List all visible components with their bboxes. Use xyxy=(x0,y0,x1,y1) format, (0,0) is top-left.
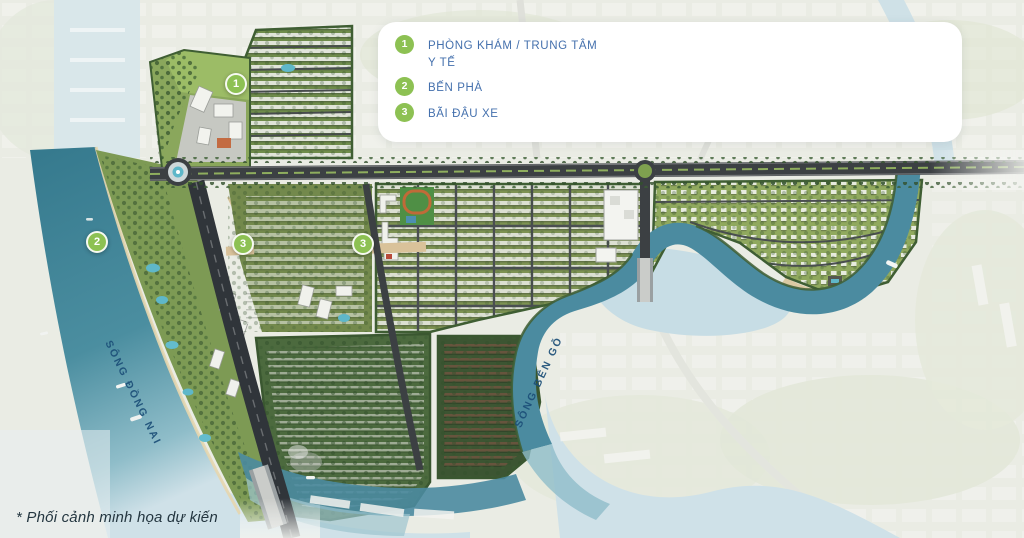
northeast-townhouse-district xyxy=(242,26,354,160)
map-marker-1[interactable]: 1 xyxy=(225,73,247,95)
legend-item-3: 3BÃI ĐẬU XE xyxy=(395,103,938,123)
legend-item-1: 1PHÒNG KHÁM / TRUNG TÂM Y TẾ xyxy=(395,35,938,71)
legend-number-badge: 1 xyxy=(395,35,414,54)
legend-label: BẾN PHÀ xyxy=(428,77,483,97)
legend-item-2: 2BẾN PHÀ xyxy=(395,77,938,97)
legend-number-badge: 3 xyxy=(395,103,414,122)
fountain-roundabout xyxy=(164,158,192,186)
legend-label: BÃI ĐẬU XE xyxy=(428,103,499,123)
east-roundabout xyxy=(634,160,656,182)
map-marker-3[interactable]: 3 xyxy=(232,233,254,255)
map-marker-2[interactable]: 2 xyxy=(86,231,108,253)
map-caption: * Phối cảnh minh họa dự kiến xyxy=(16,509,218,526)
legend-label: PHÒNG KHÁM / TRUNG TÂM Y TẾ xyxy=(428,35,606,71)
legend-card: 1PHÒNG KHÁM / TRUNG TÂM Y TẾ2BẾN PHÀ3BÃI… xyxy=(378,22,962,142)
map-marker-3[interactable]: 3 xyxy=(352,233,374,255)
legend-items: 1PHÒNG KHÁM / TRUNG TÂM Y TẾ2BẾN PHÀ3BÃI… xyxy=(395,35,938,123)
masterplan-page: 1PHÒNG KHÁM / TRUNG TÂM Y TẾ2BẾN PHÀ3BÃI… xyxy=(0,0,1024,538)
medical-campus xyxy=(150,50,250,168)
west-central-block xyxy=(226,184,372,332)
legend-number-badge: 2 xyxy=(395,77,414,96)
